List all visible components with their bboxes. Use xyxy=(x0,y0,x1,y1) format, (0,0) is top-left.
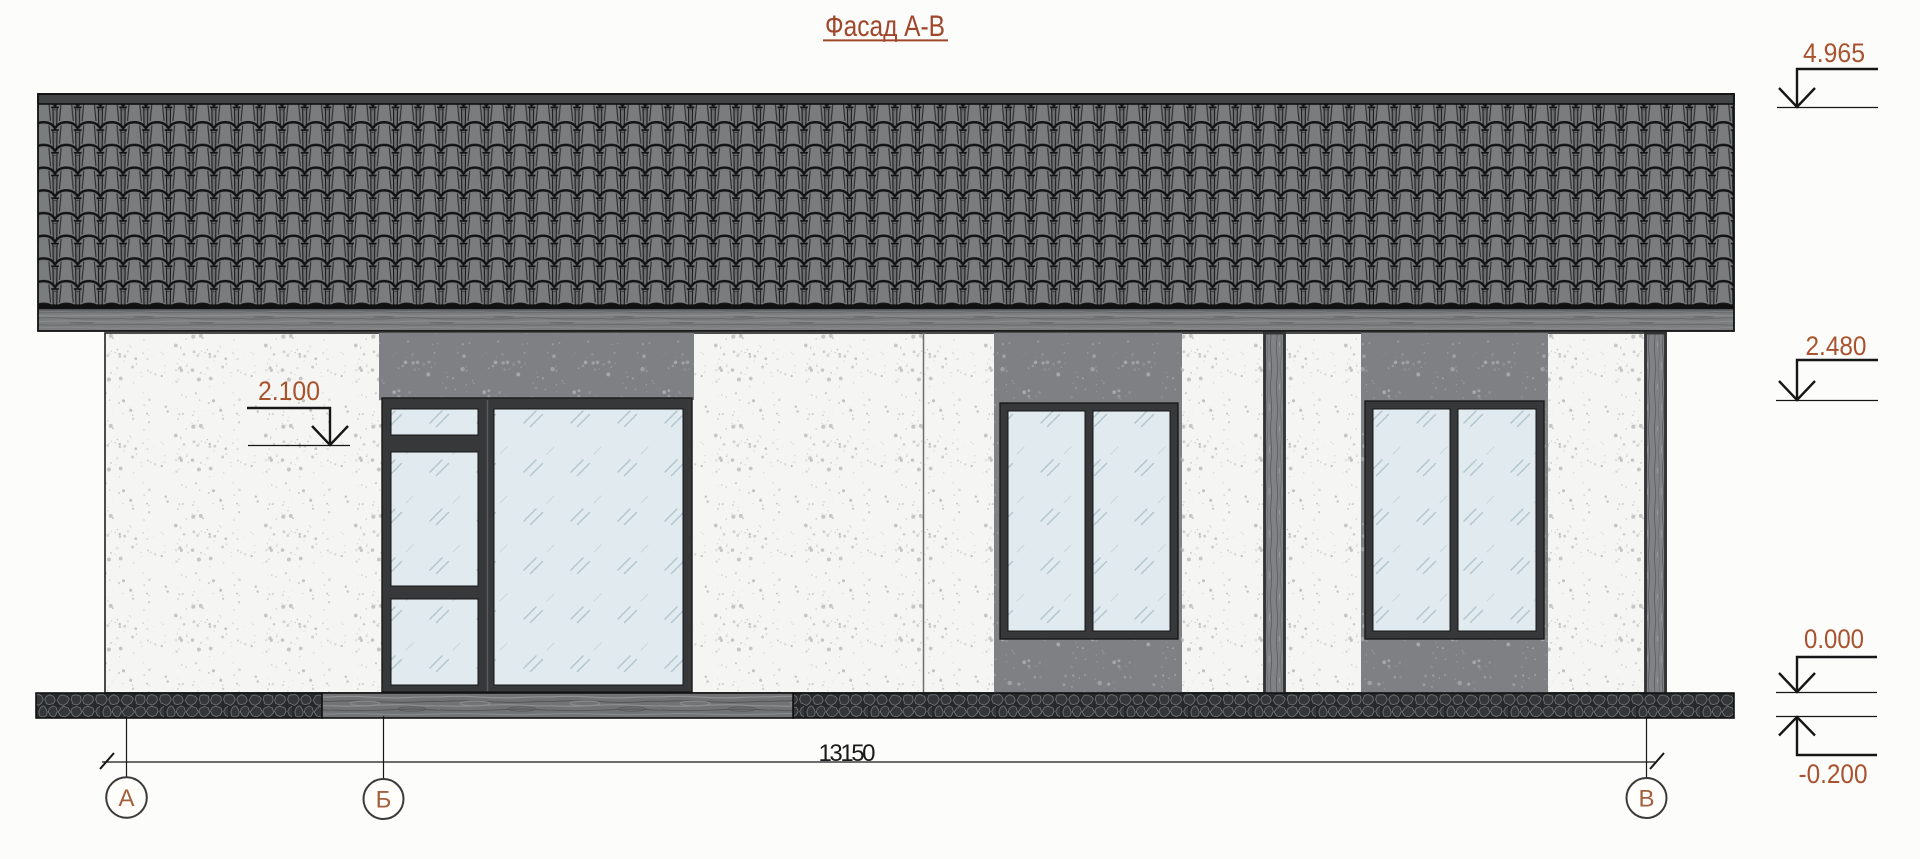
svg-text:13150: 13150 xyxy=(819,740,876,767)
svg-text:0.000: 0.000 xyxy=(1804,624,1864,654)
svg-text:2.100: 2.100 xyxy=(258,376,320,406)
svg-text:В: В xyxy=(1638,786,1654,813)
svg-text:4.965: 4.965 xyxy=(1803,38,1865,68)
svg-text:А: А xyxy=(118,785,134,812)
svg-text:2.480: 2.480 xyxy=(1806,331,1867,361)
svg-text:Б: Б xyxy=(376,787,392,814)
svg-text:Фасад А-В: Фасад А-В xyxy=(825,10,945,43)
svg-text:-0.200: -0.200 xyxy=(1799,759,1868,789)
